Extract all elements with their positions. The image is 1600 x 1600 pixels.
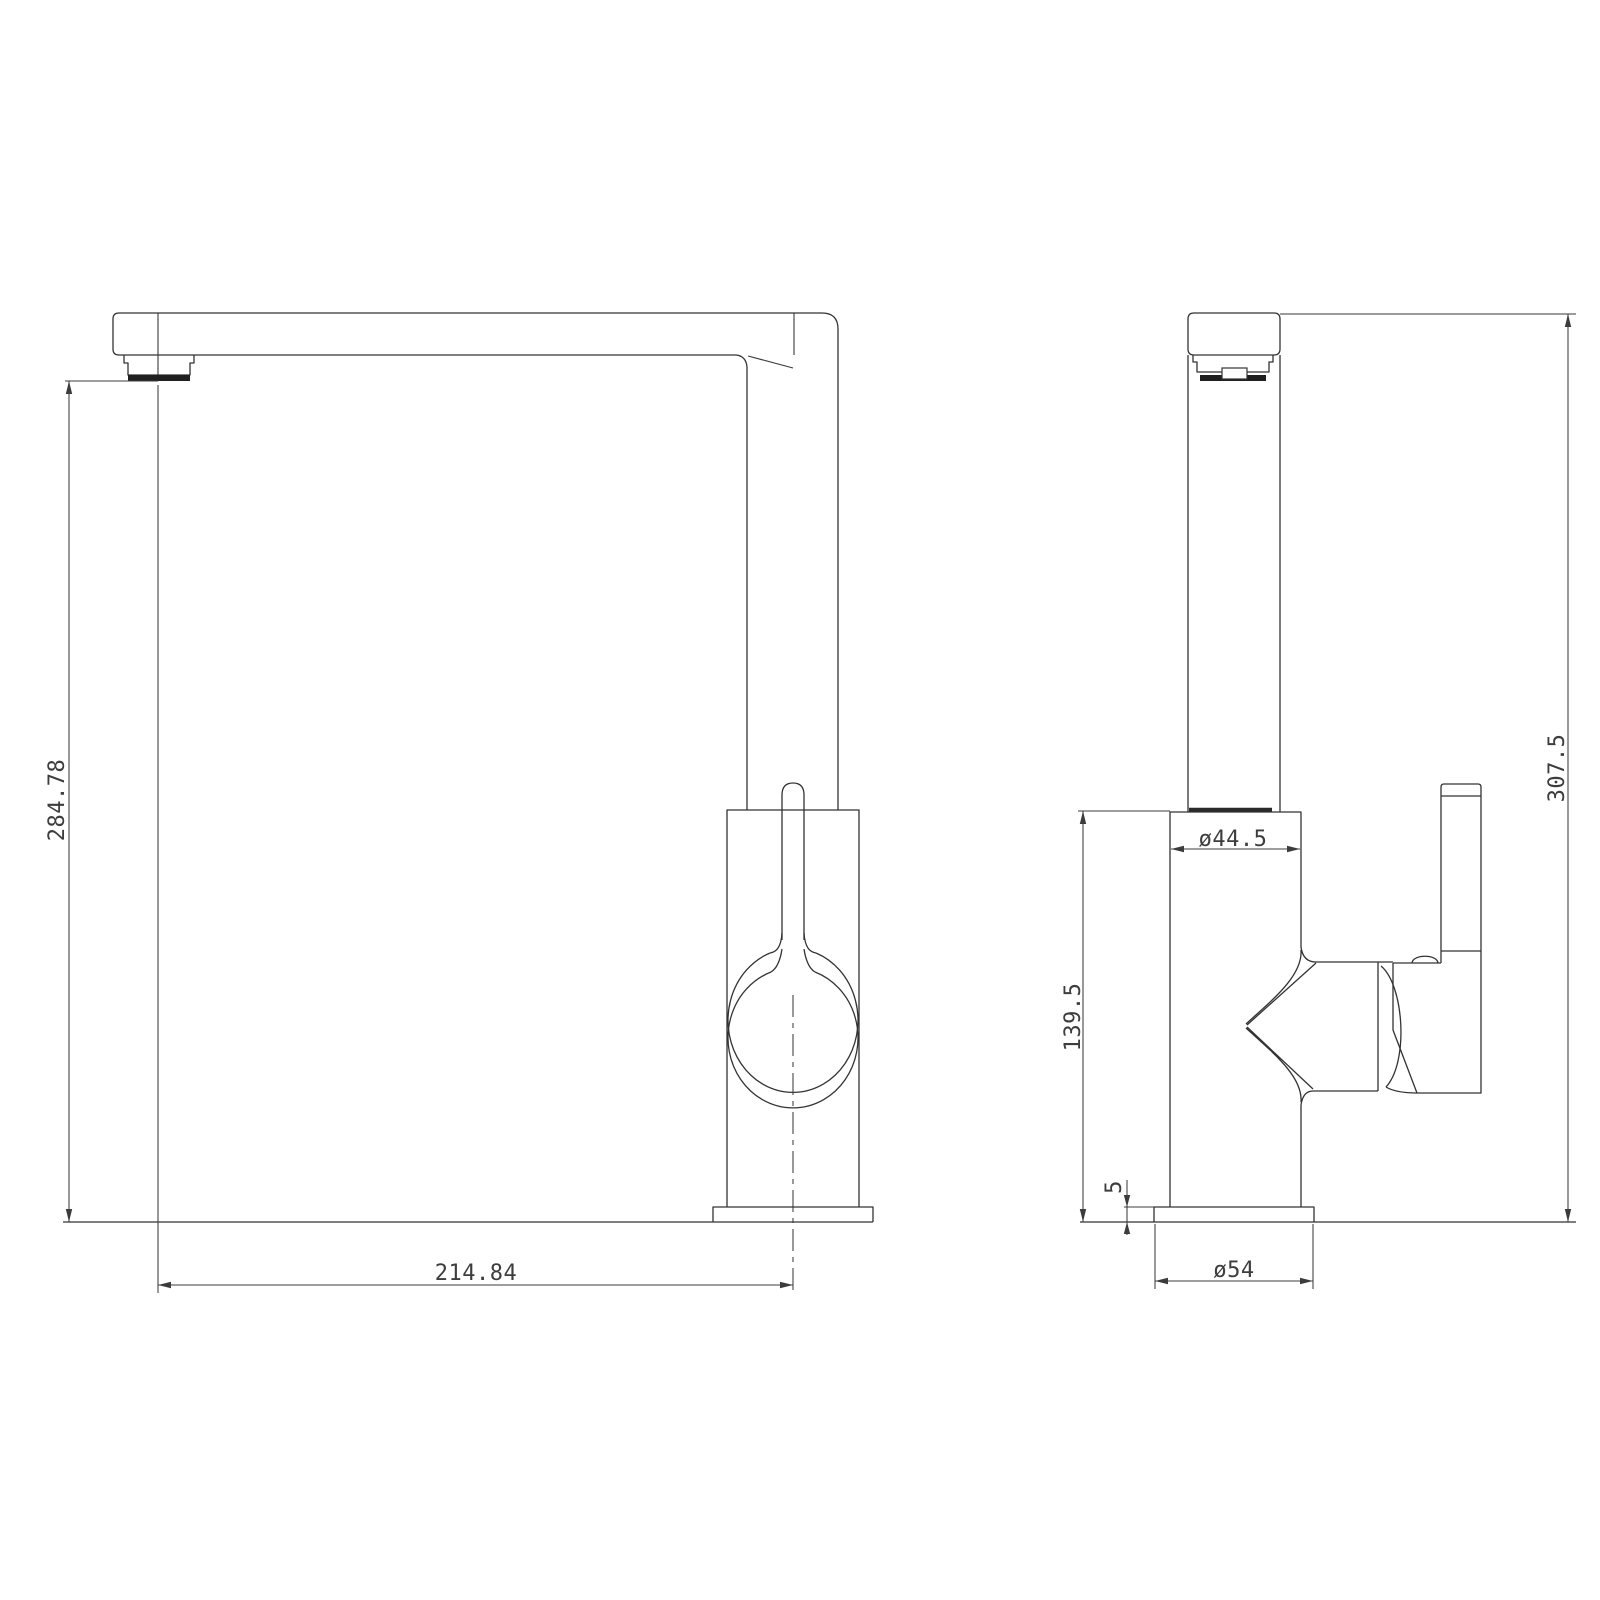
- aerator-front: [124, 355, 194, 375]
- spout-bend-seam-diagonal: [748, 356, 793, 368]
- arrow-right: [1300, 1278, 1313, 1284]
- spout-outline: [113, 313, 838, 810]
- handle-stem-front: [782, 783, 804, 940]
- dim-label-base-diameter: ø54: [1213, 1258, 1254, 1283]
- base-side: [1154, 1207, 1314, 1222]
- technical-drawing-page: 284.78 214.84 ø44.5 139.5 5 ø54: [0, 0, 1600, 1600]
- front-view: [63, 313, 873, 1293]
- dimension-total-height-307: 307.5: [1545, 314, 1571, 1222]
- arrow-right: [780, 1282, 793, 1288]
- arrow-left: [1171, 846, 1184, 852]
- arrow-left: [1155, 1278, 1168, 1284]
- dimension-body-height-139: 139.5: [1061, 811, 1170, 1222]
- dim-label-body-diameter: ø44.5: [1199, 827, 1268, 852]
- handle-block-side: [1393, 963, 1481, 1093]
- arrow-to-top: [1124, 1195, 1130, 1207]
- dimension-body-diameter-445: ø44.5: [1171, 827, 1300, 852]
- handle-stem-fillets: [770, 933, 816, 972]
- riser-side: [1188, 355, 1280, 812]
- faucet-technical-drawing: 284.78 214.84 ø44.5 139.5 5 ø54: [0, 0, 1600, 1600]
- aerator-insert-side: [1222, 368, 1247, 379]
- dim-label-body-height: 139.5: [1061, 983, 1086, 1052]
- arrow-to-bottom: [1124, 1222, 1130, 1234]
- handle-knob-arc-upper: [728, 953, 858, 1092]
- pivot-ball-arc: [1381, 966, 1417, 1093]
- arrow-down: [1080, 1209, 1086, 1222]
- handle-dome-button: [1412, 956, 1438, 963]
- body-side: [1170, 812, 1301, 1207]
- handle-lever-side: [1441, 784, 1481, 963]
- dim-label-total-height: 307.5: [1545, 734, 1570, 803]
- arrow-up: [1080, 811, 1086, 824]
- dim-label-reach: 214.84: [435, 1261, 517, 1286]
- valve-cone: [1246, 947, 1393, 1105]
- arrow-left: [158, 1282, 171, 1288]
- spout-cap-side: [1188, 313, 1280, 355]
- arrow-up: [66, 381, 72, 394]
- arrow-down: [1565, 1209, 1571, 1222]
- dimension-reach-214: 214.84: [158, 385, 793, 1293]
- arrow-right: [1287, 846, 1300, 852]
- side-view: [1080, 313, 1576, 1222]
- arrow-up: [1565, 314, 1571, 327]
- arrow-down: [66, 1209, 72, 1222]
- dim-label-height: 284.78: [45, 759, 70, 841]
- dim-label-base-thickness: 5: [1102, 1180, 1127, 1194]
- dimension-base-diameter-54: ø54: [1155, 1224, 1313, 1289]
- dimension-base-thickness-5: 5: [1102, 1180, 1154, 1235]
- dimension-height-284: 284.78: [45, 381, 158, 1222]
